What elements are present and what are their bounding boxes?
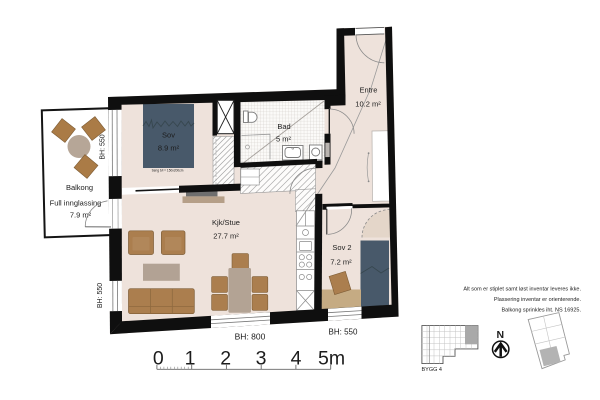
svg-text:5 m²: 5 m² bbox=[276, 134, 292, 143]
svg-text:2: 2 bbox=[220, 348, 231, 370]
svg-text:3: 3 bbox=[256, 348, 267, 370]
svg-text:7.2 m²: 7.2 m² bbox=[330, 258, 352, 267]
svg-text:Kjk/Stue: Kjk/Stue bbox=[212, 218, 240, 227]
svg-text:10.2 m²: 10.2 m² bbox=[355, 100, 381, 109]
svg-text:0: 0 bbox=[153, 348, 164, 370]
svg-text:BH: 550: BH: 550 bbox=[329, 328, 358, 337]
svg-text:BH: 550: BH: 550 bbox=[97, 283, 104, 308]
svg-text:BH: 800: BH: 800 bbox=[235, 332, 266, 342]
svg-text:BH: 550: BH: 550 bbox=[100, 134, 107, 159]
svg-text:Alt som er stiplet samt løst i: Alt som er stiplet samt løst inventar le… bbox=[463, 287, 581, 293]
svg-text:Full innglassing: Full innglassing bbox=[50, 198, 102, 207]
svg-text:5m: 5m bbox=[318, 348, 345, 370]
svg-text:27.7 m²: 27.7 m² bbox=[213, 232, 239, 241]
svg-text:1: 1 bbox=[185, 348, 196, 370]
svg-text:Bad: Bad bbox=[277, 122, 290, 131]
svg-text:BYGG 4: BYGG 4 bbox=[422, 367, 442, 373]
svg-text:N: N bbox=[497, 329, 505, 341]
svg-text:Entre: Entre bbox=[360, 86, 378, 95]
svg-text:Seng b/l = 150x200cm: Seng b/l = 150x200cm bbox=[152, 169, 184, 173]
svg-text:Sov 2: Sov 2 bbox=[332, 243, 351, 252]
svg-text:Plassering inventar er oriente: Plassering inventar er orienterende. bbox=[494, 297, 582, 303]
svg-text:Balkong: Balkong bbox=[66, 183, 93, 192]
svg-text:8.9 m²: 8.9 m² bbox=[158, 144, 180, 153]
svg-text:Sov: Sov bbox=[162, 131, 175, 140]
svg-text:4: 4 bbox=[291, 348, 302, 370]
svg-text:Balkong sprinkles iht. NS 1692: Balkong sprinkles iht. NS 16925. bbox=[502, 308, 582, 314]
